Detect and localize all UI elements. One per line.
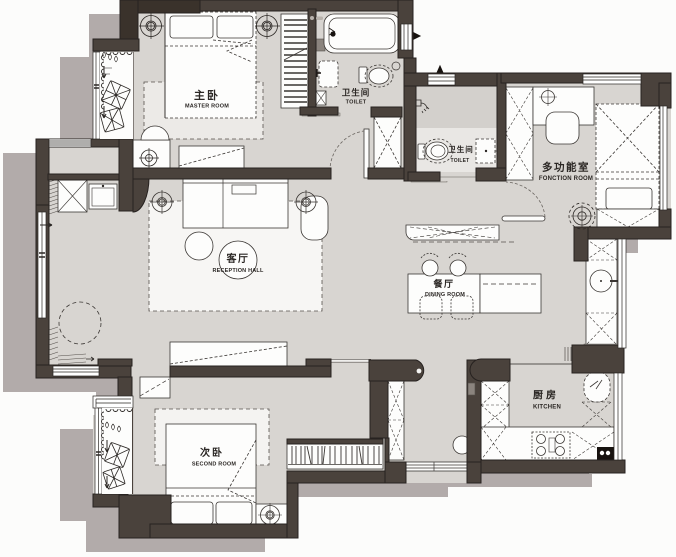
svg-text:TOILET: TOILET: [451, 158, 470, 164]
svg-text:SECOND ROOM: SECOND ROOM: [192, 462, 237, 468]
svg-text:MASTER ROOM: MASTER ROOM: [185, 104, 229, 110]
svg-text:主卧: 主卧: [194, 88, 220, 102]
svg-text:卫生间: 卫生间: [448, 144, 474, 154]
svg-text:RECEPTION HALL: RECEPTION HALL: [212, 268, 264, 274]
svg-text:客厅: 客厅: [226, 252, 250, 265]
svg-text:KITCHEN: KITCHEN: [533, 405, 561, 411]
svg-text:FONCTION ROOM: FONCTION ROOM: [539, 176, 593, 182]
svg-text:次卧: 次卧: [200, 446, 224, 459]
svg-text:卫生间: 卫生间: [342, 88, 371, 98]
svg-text:多功能室: 多功能室: [542, 161, 590, 174]
svg-text:TOILET: TOILET: [346, 100, 367, 106]
svg-text:DINING ROOM: DINING ROOM: [425, 292, 465, 298]
svg-text:厨房: 厨房: [533, 389, 559, 402]
svg-text:餐厅: 餐厅: [432, 278, 454, 289]
